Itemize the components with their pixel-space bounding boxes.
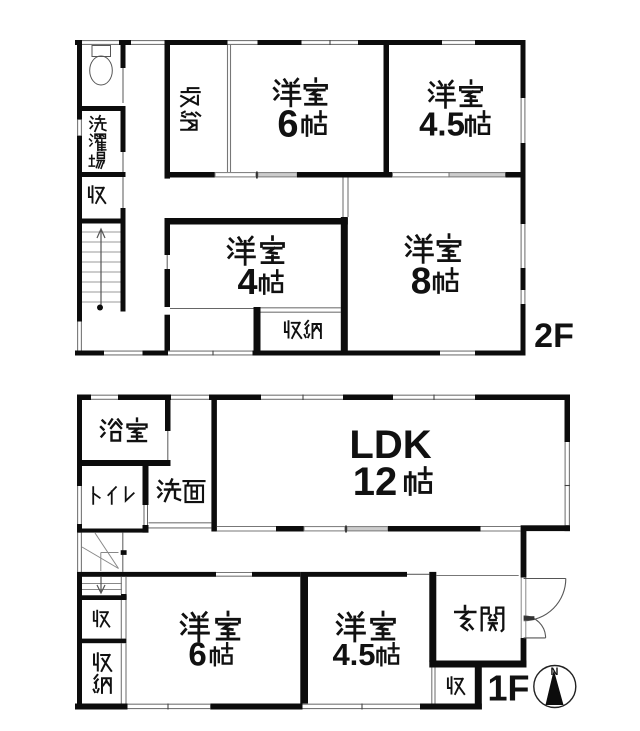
svg-text:8: 8 xyxy=(411,261,432,302)
svg-text:6: 6 xyxy=(277,104,298,146)
svg-text:N: N xyxy=(551,666,559,678)
svg-text:1F: 1F xyxy=(487,668,529,709)
svg-text:4.5: 4.5 xyxy=(419,106,465,143)
svg-text:4.5: 4.5 xyxy=(332,637,375,672)
svg-text:12: 12 xyxy=(353,460,398,504)
svg-text:6: 6 xyxy=(188,636,206,673)
svg-text:4: 4 xyxy=(237,261,257,302)
svg-text:2F: 2F xyxy=(534,317,574,355)
